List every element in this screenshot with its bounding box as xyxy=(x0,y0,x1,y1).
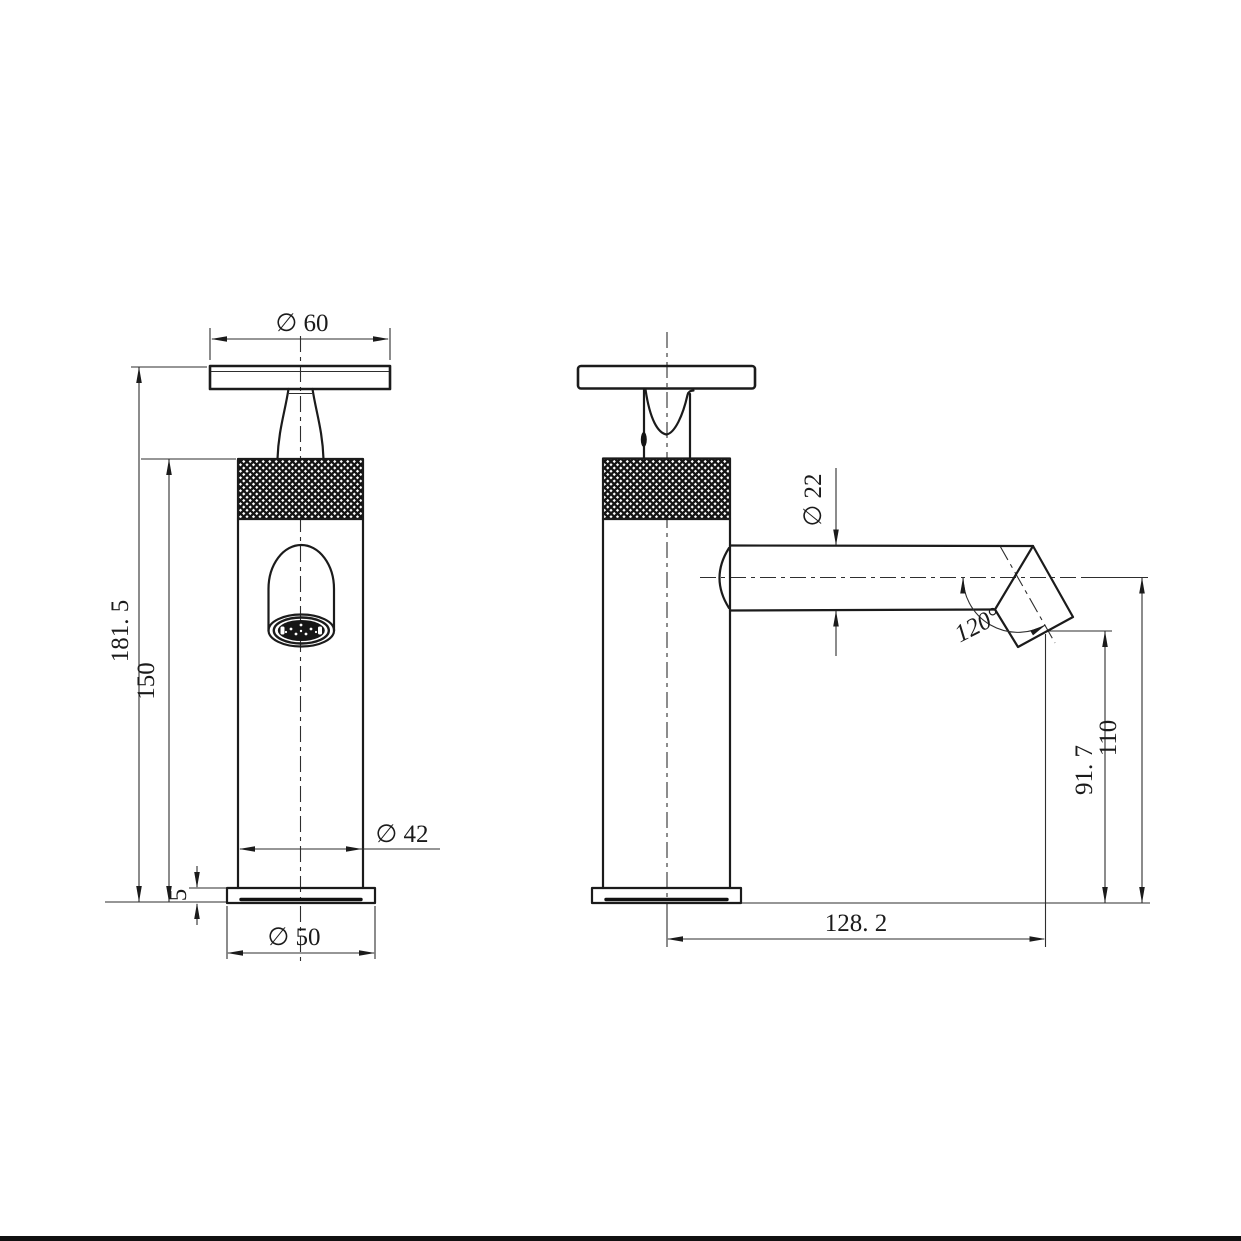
side-view xyxy=(578,366,1073,903)
dim-label-spout-diameter: ∅ 22 xyxy=(800,473,827,526)
dim-spout-axis-height: 110 xyxy=(1085,578,1148,904)
dim-base-thickness: 5 xyxy=(165,866,226,925)
dim-label-base-diameter: ∅ 50 xyxy=(267,924,320,951)
spout-top-edge xyxy=(730,546,1033,547)
front-stem-left-edge xyxy=(278,389,289,459)
technical-drawing-canvas: ∅ 60 181. 5 150 ∅ 42 5 xyxy=(0,0,1241,1241)
dim-handle-diameter: ∅ 60 xyxy=(210,310,390,360)
front-knurl-texture xyxy=(238,459,363,519)
dim-outlet-height: 91. 7 xyxy=(1049,631,1112,903)
dim-label-handle-diameter: ∅ 60 xyxy=(275,310,328,337)
centerlines xyxy=(301,332,1086,964)
dim-label-overall-height: 181. 5 xyxy=(107,600,134,663)
dim-spout-diameter: ∅ 22 xyxy=(800,468,839,656)
dim-overall-height: 181. 5 xyxy=(105,367,226,902)
dim-label-body-diameter: ∅ 42 xyxy=(375,821,428,848)
dim-label-spout-reach: 128. 2 xyxy=(825,910,888,937)
dim-body-diameter: ∅ 42 xyxy=(239,821,440,852)
dim-label-body-height: 150 xyxy=(133,662,160,700)
dim-label-spout-axis-height: 110 xyxy=(1095,720,1122,757)
spout-tip-axis-centerline xyxy=(1000,546,1055,643)
dim-label-base-thickness: 5 xyxy=(165,889,192,902)
spout-bottom-edge xyxy=(730,610,995,611)
front-stem-right-edge xyxy=(313,389,324,459)
dim-body-height: 150 xyxy=(133,459,236,902)
sheet-bottom-border xyxy=(0,1236,1241,1241)
side-knurl-texture xyxy=(603,459,730,520)
dim-label-outlet-height: 91. 7 xyxy=(1071,745,1098,795)
drawing-sheet: ∅ 60 181. 5 150 ∅ 42 5 xyxy=(0,0,1241,1241)
side-stem-slot-detail xyxy=(641,432,647,447)
side-handle-underside-curve xyxy=(646,390,694,435)
